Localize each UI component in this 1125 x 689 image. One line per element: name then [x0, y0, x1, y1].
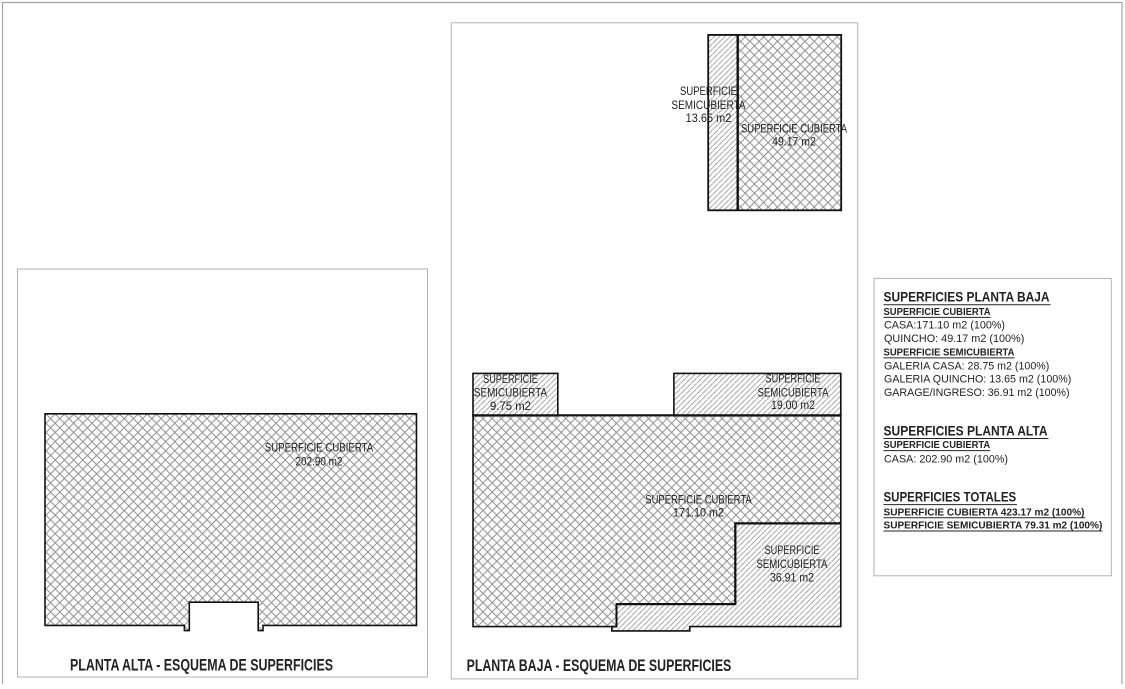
svg-text:SUPERFICIE CUBIERTA: SUPERFICIE CUBIERTA	[265, 442, 374, 455]
svg-text:SUPERFICIES PLANTA BAJA: SUPERFICIES PLANTA BAJA	[884, 289, 1050, 305]
svg-text:CASA: 202.90 m2 (100%): CASA: 202.90 m2 (100%)	[884, 453, 1008, 465]
svg-text:202.90 m2: 202.90 m2	[296, 455, 343, 468]
svg-text:CASA:171.10 m2 (100%): CASA:171.10 m2 (100%)	[884, 320, 1005, 332]
svg-text:SUPERFICIE: SUPERFICIE	[765, 544, 820, 557]
svg-text:13.65 m2: 13.65 m2	[686, 112, 732, 125]
svg-text:GALERIA CASA: 28.75 m2 (100%): GALERIA CASA: 28.75 m2 (100%)	[884, 360, 1049, 372]
svg-text:49.17 m2: 49.17 m2	[772, 136, 816, 149]
svg-text:19.00 m2: 19.00 m2	[771, 399, 815, 412]
svg-text:QUINCHO: 49.17 m2 (100%): QUINCHO: 49.17 m2 (100%)	[884, 333, 1024, 345]
svg-text:SUPERFICIE: SUPERFICIE	[766, 372, 821, 385]
svg-text:SEMICUBIERTA: SEMICUBIERTA	[757, 558, 828, 571]
svg-text:9.75 m2: 9.75 m2	[490, 400, 531, 413]
svg-text:SEMICUBIERTA: SEMICUBIERTA	[758, 386, 829, 399]
svg-text:PLANTA ALTA - ESQUEMA DE SUPER: PLANTA ALTA - ESQUEMA DE SUPERFICIES	[70, 657, 333, 675]
svg-text:PLANTA BAJA - ESQUEMA DE SUPER: PLANTA BAJA - ESQUEMA DE SUPERFICIES	[467, 657, 732, 675]
svg-text:36.91 m2: 36.91 m2	[770, 571, 814, 584]
svg-text:SUPERFICIE SEMICUBIERTA: SUPERFICIE SEMICUBIERTA	[884, 346, 1015, 358]
svg-text:SUPERFICIE: SUPERFICIE	[483, 373, 538, 386]
svg-text:SUPERFICIE: SUPERFICIE	[680, 85, 737, 98]
svg-text:SUPERFICIE CUBIERTA: SUPERFICIE CUBIERTA	[741, 122, 847, 135]
svg-text:SUPERFICIE SEMICUBIERTA 79.31: SUPERFICIE SEMICUBIERTA 79.31 m2 (100%)	[884, 520, 1103, 532]
svg-text:SUPERFICIE CUBIERTA 423.17 m2: SUPERFICIE CUBIERTA 423.17 m2 (100%)	[884, 506, 1085, 518]
svg-text:SUPERFICIES TOTALES: SUPERFICIES TOTALES	[884, 488, 1017, 504]
svg-text:SUPERFICIES PLANTA ALTA: SUPERFICIES PLANTA ALTA	[884, 422, 1048, 438]
svg-text:SEMICUBIERTA: SEMICUBIERTA	[671, 99, 745, 112]
svg-text:SEMICUBIERTA: SEMICUBIERTA	[474, 386, 547, 399]
svg-text:SUPERFICIE CUBIERTA: SUPERFICIE CUBIERTA	[645, 494, 752, 507]
svg-text:SUPERFICIE CUBIERTA: SUPERFICIE CUBIERTA	[884, 306, 991, 318]
svg-text:171.10 m2: 171.10 m2	[673, 507, 724, 520]
svg-text:GARAGE/INGRESO: 36.91 m2 (100%: GARAGE/INGRESO: 36.91 m2 (100%)	[884, 387, 1070, 399]
svg-text:GALERIA QUINCHO: 13.65 m2 (100: GALERIA QUINCHO: 13.65 m2 (100%)	[884, 374, 1071, 386]
svg-text:SUPERFICIE CUBIERTA: SUPERFICIE CUBIERTA	[884, 439, 991, 451]
